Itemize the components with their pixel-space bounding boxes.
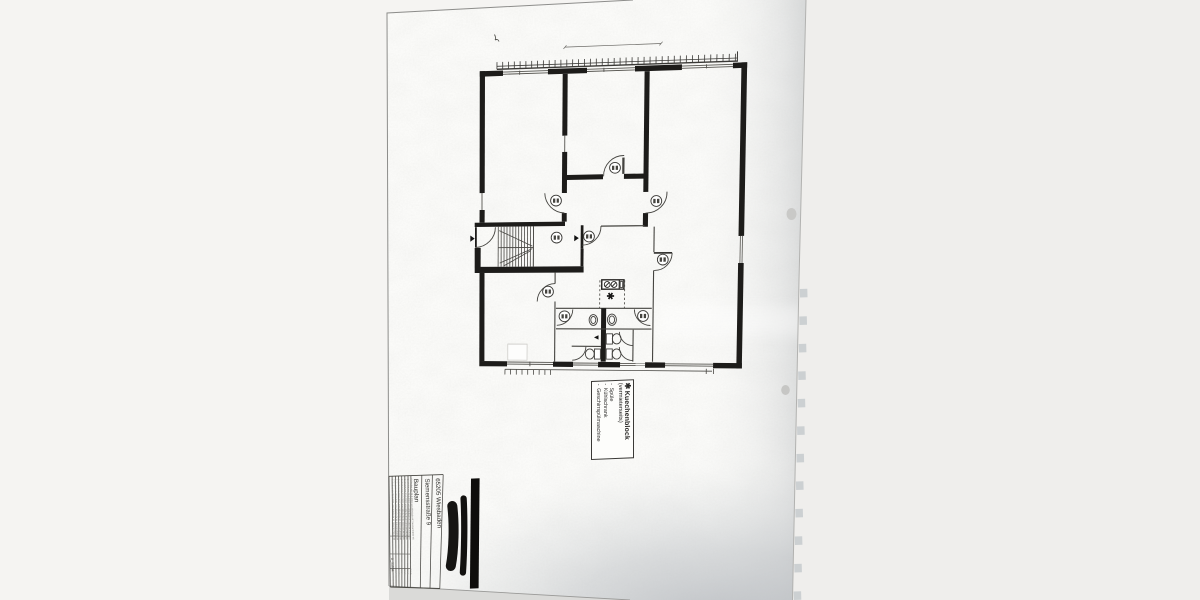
svg-text:Siemensstraße 9: Siemensstraße 9 <box>423 478 432 526</box>
svg-text:65205 Wiesbaden: 65205 Wiesbaden <box>434 478 443 529</box>
svg-text:Datum: Datum <box>409 569 412 575</box>
svg-text:D_53984: D_53984 <box>390 558 394 572</box>
svg-text:Datum: Datum <box>400 568 403 574</box>
svg-text:Datum: Datum <box>397 568 400 574</box>
svg-text:Datum: Datum <box>406 569 409 575</box>
svg-text:Bauplan: Bauplan <box>412 479 420 503</box>
svg-text:Datum: Datum <box>403 569 406 575</box>
